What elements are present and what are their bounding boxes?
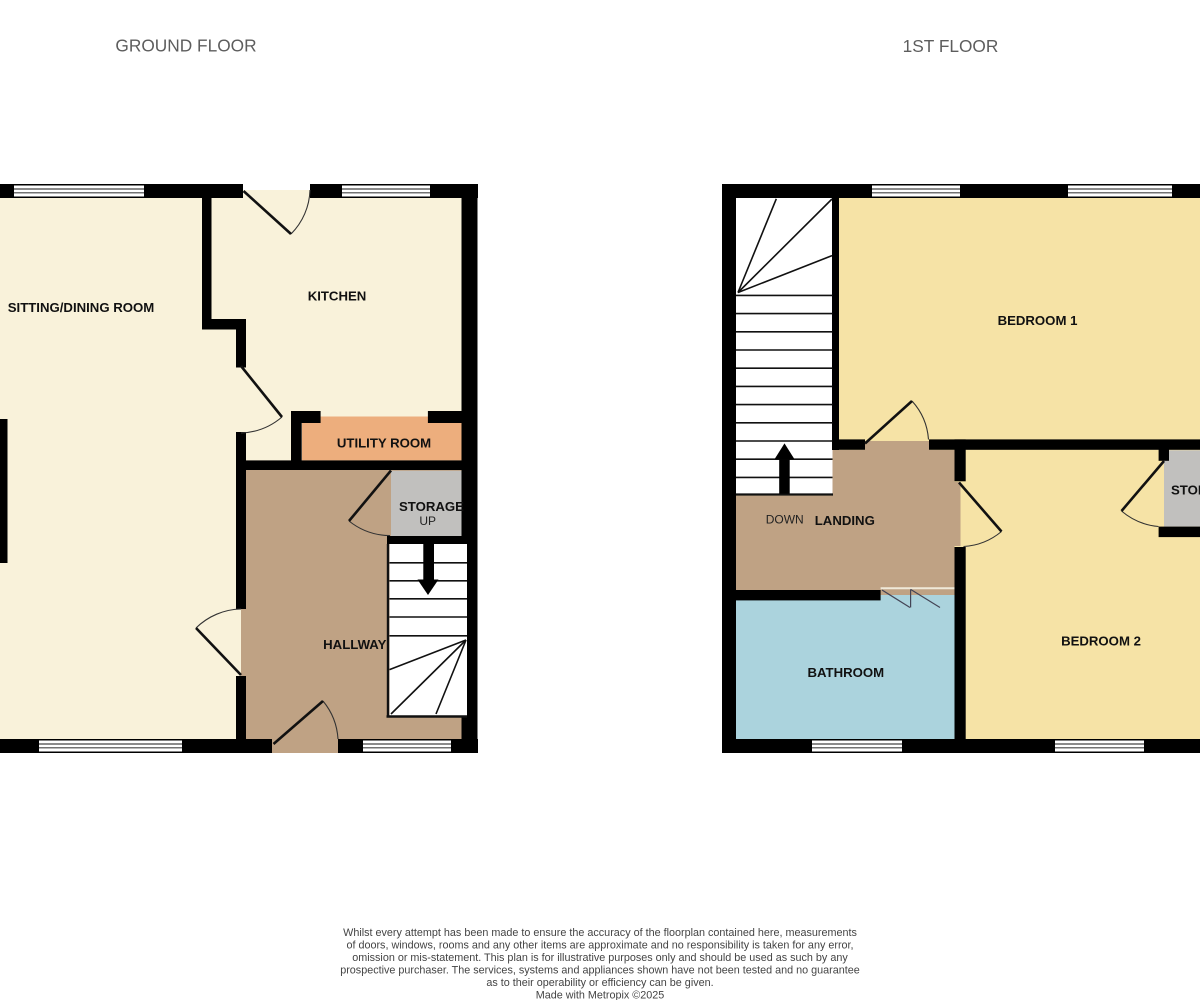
svg-text:1ST FLOOR: 1ST FLOOR	[903, 36, 999, 56]
svg-text:prospective purchaser. The ser: prospective purchaser. The services, sys…	[340, 965, 860, 977]
svg-text:of doors, windows, rooms and a: of doors, windows, rooms and any other i…	[346, 940, 853, 952]
svg-text:BEDROOM 2: BEDROOM 2	[1061, 634, 1141, 649]
svg-text:HALLWAY: HALLWAY	[323, 637, 386, 652]
svg-text:Whilst every attempt has been: Whilst every attempt has been made to en…	[343, 927, 857, 939]
svg-text:BATHROOM: BATHROOM	[807, 665, 884, 680]
svg-text:GROUND FLOOR: GROUND FLOOR	[115, 36, 256, 56]
svg-text:BEDROOM 1: BEDROOM 1	[998, 313, 1078, 328]
svg-text:STORAGE: STORAGE	[399, 499, 464, 514]
svg-text:SITTING/DINING ROOM: SITTING/DINING ROOM	[8, 300, 155, 315]
svg-text:UP: UP	[419, 514, 436, 528]
svg-text:UTILITY ROOM: UTILITY ROOM	[337, 436, 431, 451]
svg-text:LANDING: LANDING	[815, 513, 875, 528]
svg-text:Made with Metropix ©2025: Made with Metropix ©2025	[536, 990, 665, 1000]
svg-text:STORAGE: STORAGE	[1171, 483, 1200, 498]
svg-text:KITCHEN: KITCHEN	[308, 289, 367, 304]
svg-text:DOWN: DOWN	[766, 513, 804, 527]
svg-text:as to their operability or eff: as to their operability or efficiency ca…	[486, 977, 713, 989]
svg-text:omission or mis-statement. Thi: omission or mis-statement. This plan is …	[352, 952, 848, 964]
